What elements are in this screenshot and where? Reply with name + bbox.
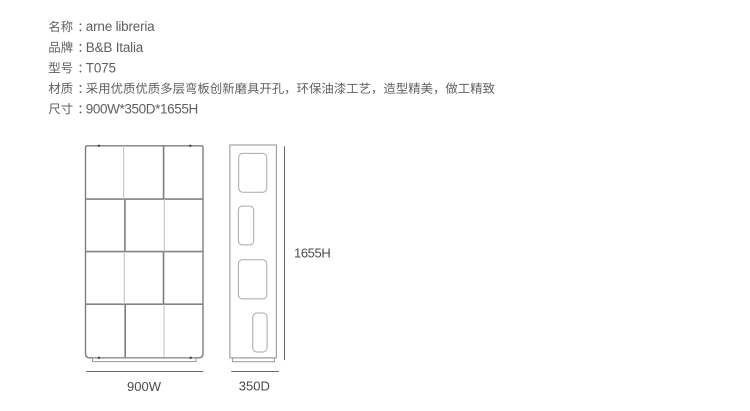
svg-text:T075: T075 (86, 60, 116, 75)
svg-text:1655H: 1655H (294, 246, 330, 261)
svg-text:900W*350D*1655H: 900W*350D*1655H (86, 101, 198, 116)
svg-text:350D: 350D (239, 379, 270, 394)
svg-text:900W: 900W (127, 379, 162, 394)
svg-text:B&B Italia: B&B Italia (86, 40, 144, 55)
svg-text:arne libreria: arne libreria (86, 19, 155, 34)
